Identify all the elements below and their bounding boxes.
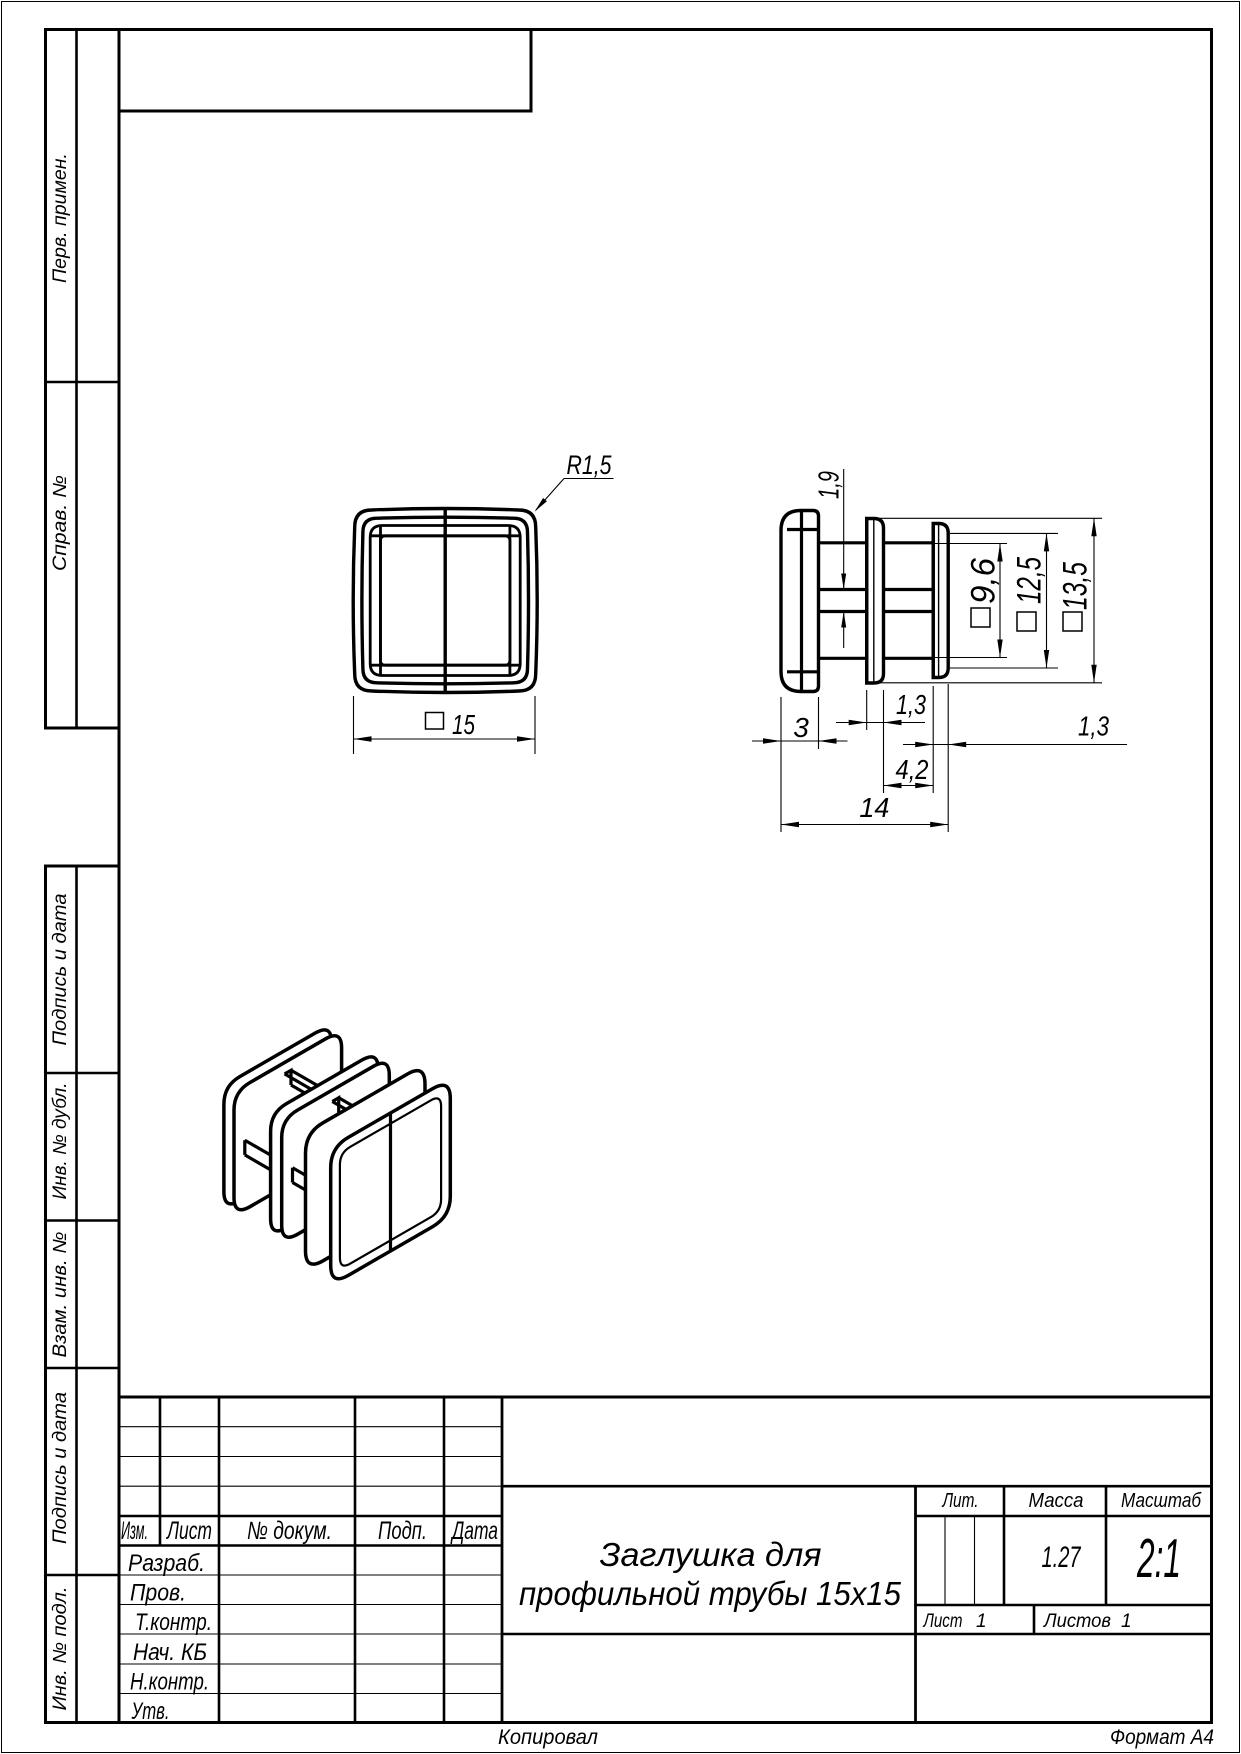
svg-text:1: 1 xyxy=(976,1611,987,1632)
svg-text:Н.контр.: Н.контр. xyxy=(130,1669,209,1696)
svg-text:Масса: Масса xyxy=(1029,1490,1084,1512)
svg-text:Заглушка для: Заглушка для xyxy=(600,1536,822,1573)
svg-text:2:1: 2:1 xyxy=(1136,1527,1181,1589)
svg-text:14: 14 xyxy=(859,792,889,823)
svg-text:№ докум.: № докум. xyxy=(247,1517,332,1545)
svg-text:R1,5: R1,5 xyxy=(567,450,613,480)
svg-text:Пров.: Пров. xyxy=(130,1580,186,1607)
svg-text:1: 1 xyxy=(1121,1611,1132,1632)
svg-text:9,6: 9,6 xyxy=(965,558,1003,604)
svg-text:3: 3 xyxy=(793,712,809,743)
svg-text:1,3: 1,3 xyxy=(1078,711,1109,742)
svg-text:Изм.: Изм. xyxy=(121,1517,148,1545)
svg-text:Подпись и дата: Подпись и дата xyxy=(50,1392,71,1544)
svg-text:1,3: 1,3 xyxy=(896,689,926,720)
svg-text:Формат А4: Формат А4 xyxy=(1110,1726,1214,1749)
svg-text:Справ. №: Справ. № xyxy=(50,475,71,571)
svg-text:1.27: 1.27 xyxy=(1042,1541,1082,1574)
svg-text:Утв.: Утв. xyxy=(131,1698,170,1725)
svg-text:13,5: 13,5 xyxy=(1057,562,1095,610)
svg-text:Т.контр.: Т.контр. xyxy=(135,1609,212,1636)
svg-text:Нач. КБ: Нач. КБ xyxy=(133,1639,207,1666)
svg-text:12,5: 12,5 xyxy=(1011,557,1049,604)
svg-text:Лист: Лист xyxy=(922,1611,963,1632)
svg-text:Подп.: Подп. xyxy=(378,1517,427,1545)
svg-text:15: 15 xyxy=(452,709,475,740)
svg-text:Разраб.: Разраб. xyxy=(128,1550,205,1577)
svg-text:Листов: Листов xyxy=(1042,1611,1111,1632)
svg-text:1,9: 1,9 xyxy=(814,471,846,499)
svg-text:Инв. № дубл.: Инв. № дубл. xyxy=(50,1083,71,1200)
svg-text:Инв. № подл.: Инв. № подл. xyxy=(50,1587,71,1711)
svg-text:Перв. примен.: Перв. примен. xyxy=(50,153,71,283)
svg-text:Лист: Лист xyxy=(166,1517,212,1545)
svg-text:4,2: 4,2 xyxy=(896,754,929,785)
svg-text:профильной трубы 15х15: профильной трубы 15х15 xyxy=(519,1575,902,1612)
svg-text:Подпись и дата: Подпись и дата xyxy=(50,894,71,1046)
svg-text:Дата: Дата xyxy=(450,1517,498,1545)
svg-text:Масштаб: Масштаб xyxy=(1121,1490,1202,1512)
svg-text:Лит.: Лит. xyxy=(941,1490,979,1512)
svg-text:Взам. инв. №: Взам. инв. № xyxy=(50,1232,71,1358)
svg-text:Копировал: Копировал xyxy=(498,1726,598,1749)
